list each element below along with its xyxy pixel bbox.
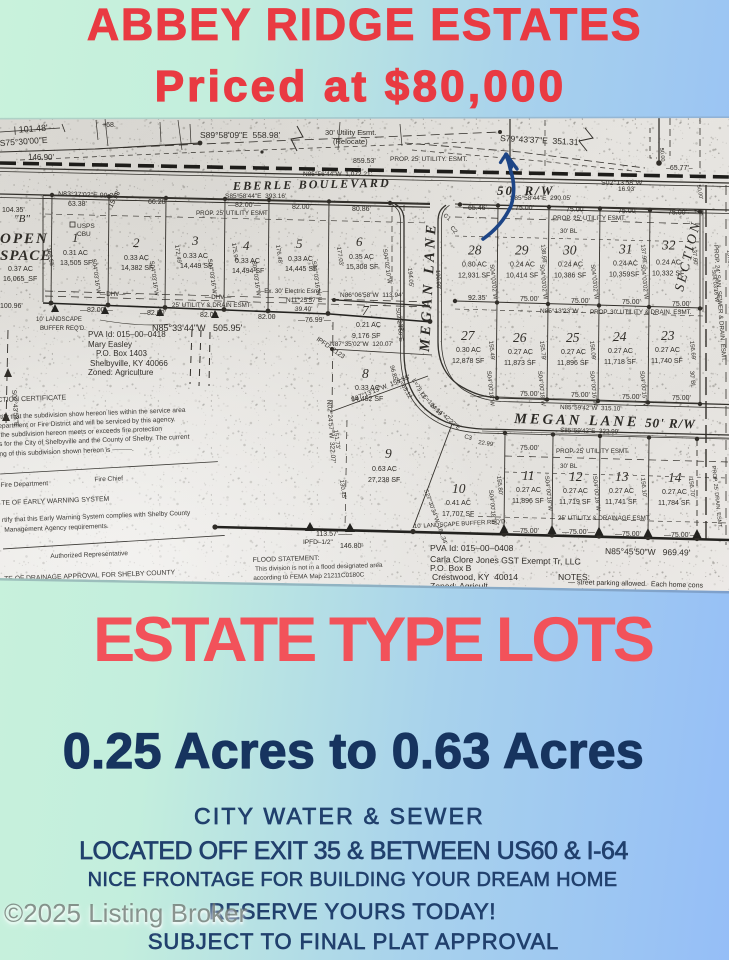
svg-text:190.90': 190.90' — [434, 270, 441, 290]
svg-text:82.00: 82.00 — [200, 312, 218, 319]
svg-text:11,740 SF: 11,740 SF — [651, 358, 683, 365]
svg-text:28: 28 — [468, 243, 482, 258]
svg-text:11,896 SF: 11,896 SF — [557, 360, 589, 367]
svg-text:N85°59'42"W 315.10': N85°59'42"W 315.10' — [560, 403, 622, 413]
svg-text:75.00': 75.00' — [520, 296, 539, 303]
svg-text:10,386 SF: 10,386 SF — [554, 273, 586, 280]
svg-text:BUFFER REQ'D.: BUFFER REQ'D. — [40, 326, 86, 332]
svg-text:OPEN: OPEN — [0, 231, 49, 247]
svg-text:PROP. 30' UTILITY & DRAIN. ESM: PROP. 30' UTILITY & DRAIN. ESMT. — [590, 309, 692, 316]
svg-text:0.27 AC: 0.27 AC — [655, 347, 680, 354]
svg-text:82.00: 82.00 — [258, 314, 276, 321]
svg-text:0.27 AC: 0.27 AC — [563, 488, 588, 495]
svg-text:Mary Easley: Mary Easley — [88, 340, 132, 349]
svg-text:1: 1 — [72, 230, 79, 245]
svg-text:14,452 SF: 14,452 SF — [351, 396, 383, 403]
svg-text:16,065_SF: 16,065_SF — [3, 276, 37, 283]
svg-text:0.33 AC: 0.33 AC — [124, 255, 149, 262]
svg-text:75.00': 75.00' — [672, 301, 691, 308]
svg-text:2: 2 — [133, 235, 140, 250]
svg-text:0.37 AC: 0.37 AC — [8, 266, 33, 273]
svg-text:80.86': 80.86' — [352, 206, 371, 213]
svg-text:CBU: CBU — [77, 231, 91, 238]
svg-text:S85°58'44"E 290.05': S85°58'44"E 290.05' — [510, 194, 571, 202]
svg-text:PROP. 25' UTILITY ESMT: PROP. 25' UTILITY ESMT — [196, 210, 268, 217]
svg-text:S85°58'44"E 393.16': S85°58'44"E 393.16' — [225, 192, 286, 200]
svg-text:—Ex. 30' Electric Esmt.—: —Ex. 30' Electric Esmt.— — [258, 288, 329, 295]
svg-text:30' Utility Esmt.: 30' Utility Esmt. — [325, 128, 376, 137]
svg-text:0.63 AC: 0.63 AC — [372, 466, 397, 473]
svg-text:+68.: +68. — [102, 122, 116, 129]
svg-text:14,382 SF: 14,382 SF — [121, 265, 153, 272]
svg-text:—75.00'—: —75.00'— — [562, 529, 595, 536]
svg-text:0.33 AC: 0.33 AC — [288, 256, 313, 263]
svg-text:17,707 SF: 17,707 SF — [442, 511, 474, 518]
svg-text:10: 10 — [452, 481, 466, 496]
svg-text:0.30 AC: 0.30 AC — [456, 347, 481, 354]
svg-text:4: 4 — [243, 238, 250, 253]
svg-text:S89°58'09"E 558.98': S89°58'09"E 558.98' — [200, 130, 280, 140]
svg-text:859.53': 859.53' — [353, 158, 376, 165]
svg-text:0.27 AC: 0.27 AC — [662, 489, 687, 496]
svg-text:0.41 AC: 0.41 AC — [446, 500, 471, 507]
svg-text:0.30 AC: 0.30 AC — [462, 262, 487, 269]
svg-text:75.00': 75.00' — [622, 299, 641, 306]
svg-text:92.35': 92.35' — [468, 295, 487, 302]
svg-text:0.27 AC: 0.27 AC — [516, 487, 541, 494]
svg-text:82.00': 82.00' — [292, 204, 311, 211]
svg-text:3: 3 — [191, 233, 199, 248]
svg-text:14: 14 — [668, 470, 682, 485]
svg-text:30' BL: 30' BL — [560, 228, 578, 235]
svg-text:75.00': 75.00' — [668, 210, 687, 217]
svg-text:0.21 AC: 0.21 AC — [356, 322, 381, 329]
svg-text:—82.00': —82.00' — [140, 310, 166, 317]
svg-text:Shelbyville, KY 40066: Shelbyville, KY 40066 — [90, 359, 168, 368]
svg-text:26: 26 — [513, 330, 527, 345]
svg-text:65.46': 65.46' — [468, 205, 487, 212]
svg-text:—75.00': —75.00' — [513, 528, 539, 535]
svg-text:9: 9 — [385, 446, 392, 461]
svg-text:5: 5 — [296, 236, 303, 251]
svg-text:23: 23 — [661, 328, 675, 343]
svg-text:50' R/W: 50' R/W — [645, 415, 697, 431]
svg-text:29: 29 — [515, 243, 529, 258]
svg-text:–65.77'–: –65.77'– — [666, 165, 693, 172]
svg-text:—75.00'—: —75.00'— — [664, 532, 697, 539]
svg-text:25: 25 — [566, 330, 580, 345]
svg-text:PVA Id: 015–00–0408: PVA Id: 015–00–0408 — [430, 543, 514, 553]
svg-text:113.57'——: 113.57'—— — [316, 531, 352, 538]
svg-text:0.31 AC: 0.31 AC — [63, 250, 88, 257]
svg-text:66.28': 66.28' — [148, 199, 167, 206]
svg-text:25' UTILITY & DRAINAGE ESMT.: 25' UTILITY & DRAINAGE ESMT. — [558, 515, 651, 522]
svg-text:75.00': 75.00' — [571, 298, 590, 305]
svg-text:0.33 AC: 0.33 AC — [355, 385, 380, 392]
svg-text:12: 12 — [569, 469, 583, 484]
svg-text:13,505 SF: 13,505 SF — [60, 260, 92, 267]
svg-text:0.35 AC: 0.35 AC — [349, 254, 374, 261]
svg-text:63.38': 63.38' — [68, 201, 87, 208]
svg-text:PROP. 25' UTILITY ESMT.: PROP. 25' UTILITY ESMT. — [556, 448, 629, 455]
svg-text:—75.00': —75.00' — [615, 531, 641, 538]
svg-text:75.00': 75.00' — [520, 445, 539, 452]
svg-text:"B": "B" — [14, 213, 30, 225]
svg-text:10' LANDSCAPE: 10' LANDSCAPE — [36, 317, 82, 323]
svg-text:14,494 SF: 14,494 SF — [232, 268, 264, 275]
svg-text:12,878 SF: 12,878 SF — [452, 358, 484, 365]
svg-text:Zoned: Agriculture: Zoned: Agriculture — [88, 368, 154, 377]
svg-text:0.27 AC: 0.27 AC — [609, 488, 634, 495]
svg-text:0.27 AC: 0.27 AC — [608, 348, 633, 355]
svg-text:75.00': 75.00' — [618, 208, 637, 215]
svg-text:N85°13'23"W: N85°13'23"W — [540, 307, 580, 315]
svg-text:75.00': 75.00' — [622, 394, 641, 401]
svg-text:PROP. 25' UTILITY. ESMT.: PROP. 25' UTILITY. ESMT. — [390, 156, 468, 163]
svg-text:11,784 SF: 11,784 SF — [658, 500, 690, 507]
svg-text:—DHV—: —DHV— — [100, 291, 126, 298]
svg-text:—76.99'—: —76.99'— — [298, 317, 331, 324]
svg-text:75.00': 75.00' — [520, 391, 539, 398]
svg-text:27: 27 — [461, 328, 476, 343]
svg-text:10,359SF: 10,359SF — [609, 272, 639, 279]
svg-text:N86°06'58"W 113.94': N86°06'58"W 113.94' — [340, 291, 403, 299]
svg-text:13: 13 — [615, 469, 629, 484]
svg-text:PVA Id: 015–00–0418: PVA Id: 015–00–0418 — [88, 330, 166, 339]
svg-text:75.00': 75.00' — [566, 207, 585, 214]
svg-text:N87°35'02"W 120.07': N87°35'02"W 120.07' — [330, 340, 393, 348]
svg-text:11,896 SF: 11,896 SF — [512, 498, 544, 505]
svg-text:8: 8 — [362, 366, 369, 381]
svg-text:IPFD–1/2": IPFD–1/2" — [303, 539, 333, 546]
svg-text:39.40': 39.40' — [295, 306, 313, 313]
svg-text:31: 31 — [618, 242, 633, 257]
svg-text:27,238 SF: 27,238 SF — [368, 477, 400, 484]
svg-text:0.24 AC: 0.24 AC — [510, 262, 535, 269]
svg-text:USPS: USPS — [77, 223, 95, 230]
svg-text:0.24 AC: 0.24 AC — [558, 262, 583, 269]
svg-text:—82.00'—: —82.00'— — [80, 307, 113, 314]
svg-text:30: 30 — [562, 243, 577, 258]
svg-text:10,414 SF: 10,414 SF — [506, 273, 538, 280]
svg-text:N11°25'57"E: N11°25'57"E — [286, 296, 323, 304]
svg-text:15,308 SF: 15,308 SF — [346, 264, 378, 271]
svg-text:P.O. Box 1403: P.O. Box 1403 — [96, 349, 148, 358]
svg-text:0.27 AC: 0.27 AC — [561, 349, 586, 356]
svg-text:11: 11 — [522, 468, 535, 483]
svg-text:146.90': 146.90' — [28, 153, 54, 162]
svg-text:11,873 SF: 11,873 SF — [504, 360, 536, 367]
svg-text:Fire Chief: Fire Chief — [94, 475, 123, 483]
svg-text:SPACE: SPACE — [0, 248, 51, 264]
svg-text:0.33 AC: 0.33 AC — [183, 253, 208, 260]
svg-text:6: 6 — [356, 234, 363, 249]
svg-text:100.96': 100.96' — [0, 303, 23, 310]
svg-text:75.00': 75.00' — [515, 205, 534, 212]
svg-text:0.24 AC: 0.24 AC — [613, 261, 638, 268]
svg-text:32: 32 — [661, 238, 676, 253]
svg-text:11,718 SF: 11,718 SF — [604, 359, 636, 366]
svg-text:75.00': 75.00' — [672, 395, 691, 402]
svg-text:11,741 SF: 11,741 SF — [605, 499, 637, 506]
svg-text:146.80': 146.80' — [340, 543, 363, 550]
svg-text:16.93': 16.93' — [618, 186, 636, 193]
svg-text:0.27 AC: 0.27 AC — [508, 349, 533, 356]
svg-text:—DHV—: —DHV— — [205, 294, 231, 301]
svg-text:24: 24 — [613, 329, 627, 344]
svg-text:12,931 SF: 12,931 SF — [458, 273, 490, 280]
svg-text:9,176 SF: 9,176 SF — [352, 333, 380, 340]
svg-text:N85°45'50"W 969.49': N85°45'50"W 969.49' — [605, 546, 691, 557]
svg-text:75.00': 75.00' — [571, 392, 590, 399]
svg-text:11,719 SF: 11,719 SF — [559, 499, 591, 506]
